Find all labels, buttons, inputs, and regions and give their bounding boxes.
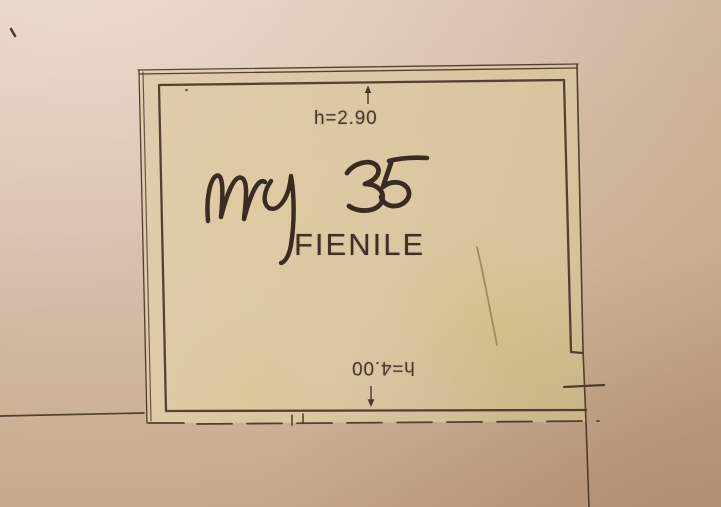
upper-height-dimension-label: h=2.90 xyxy=(314,108,377,130)
lower-height-dimension-label: h=4.00 xyxy=(344,356,422,378)
handwritten-letter-m xyxy=(207,176,265,221)
room-name-label: FIENILE xyxy=(294,227,425,263)
handwritten-letter-q xyxy=(265,176,294,263)
handwritten-digit-5 xyxy=(381,163,409,206)
handwritten-digit-5-bar xyxy=(389,158,427,161)
handwritten-digit-3 xyxy=(347,162,383,210)
floor-plan-photo: h=2.90 FIENILE h=4.00 xyxy=(0,0,721,507)
